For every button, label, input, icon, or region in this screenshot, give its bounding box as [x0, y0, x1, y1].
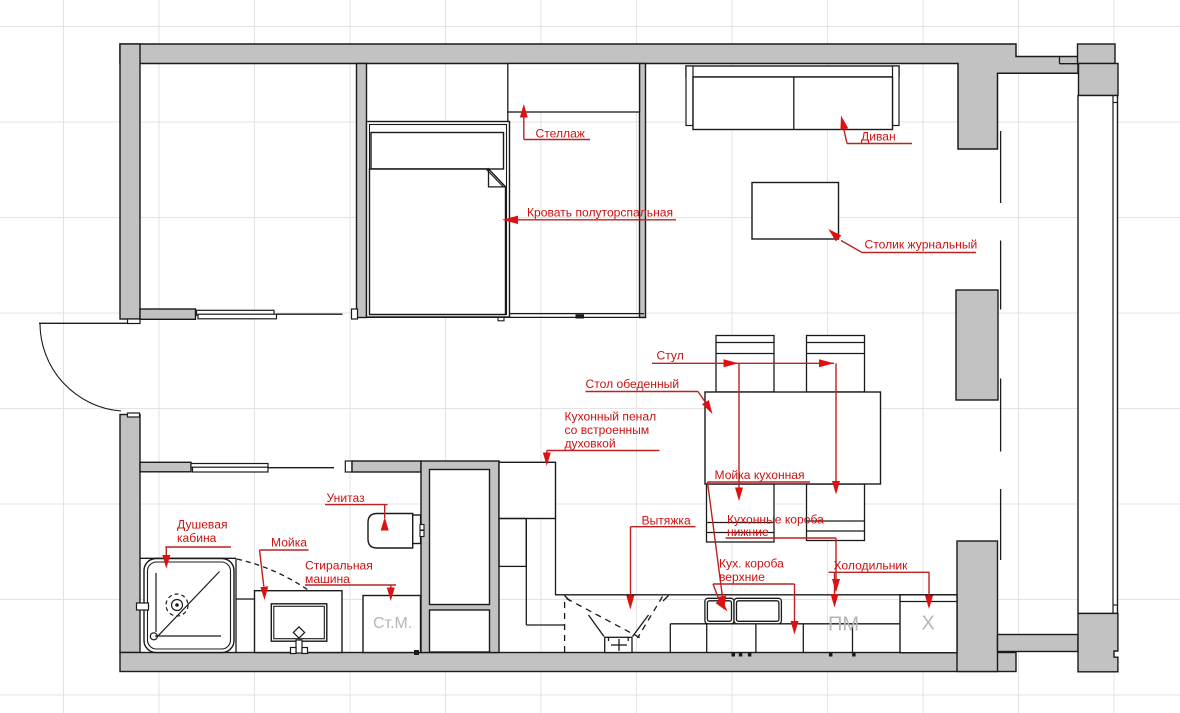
svg-text:Кухонный пенал: Кухонный пенал [565, 410, 657, 424]
svg-text:Стиральная: Стиральная [305, 559, 373, 573]
svg-text:со встроенным: со встроенным [565, 423, 650, 437]
svg-text:Мойка кухонная: Мойка кухонная [715, 468, 805, 482]
svg-text:Вытяжка: Вытяжка [642, 514, 691, 528]
svg-text:ПМ: ПМ [828, 614, 859, 636]
svg-text:Душевая: Душевая [177, 518, 228, 532]
svg-text:Столик журнальный: Столик журнальный [865, 238, 978, 252]
svg-text:нижние: нижние [727, 525, 769, 539]
svg-text:кабина: кабина [177, 531, 217, 545]
svg-text:Холодильник: Холодильник [834, 559, 909, 573]
svg-text:Кровать полуторспальная: Кровать полуторспальная [527, 206, 673, 220]
svg-text:духовкой: духовкой [565, 437, 616, 451]
svg-text:Мойка: Мойка [271, 536, 307, 550]
svg-text:Стул: Стул [657, 349, 684, 363]
svg-text:Кух. короба: Кух. короба [719, 557, 784, 571]
svg-text:Ст.М.: Ст.М. [373, 615, 412, 632]
svg-text:Х: Х [922, 613, 935, 635]
svg-text:Стол обеденный: Стол обеденный [586, 377, 680, 391]
svg-text:машина: машина [305, 572, 350, 586]
svg-text:Стеллаж: Стеллаж [536, 127, 586, 141]
svg-text:Унитаз: Унитаз [327, 491, 366, 505]
svg-text:верхние: верхние [719, 570, 765, 584]
svg-text:Диван: Диван [861, 130, 896, 144]
